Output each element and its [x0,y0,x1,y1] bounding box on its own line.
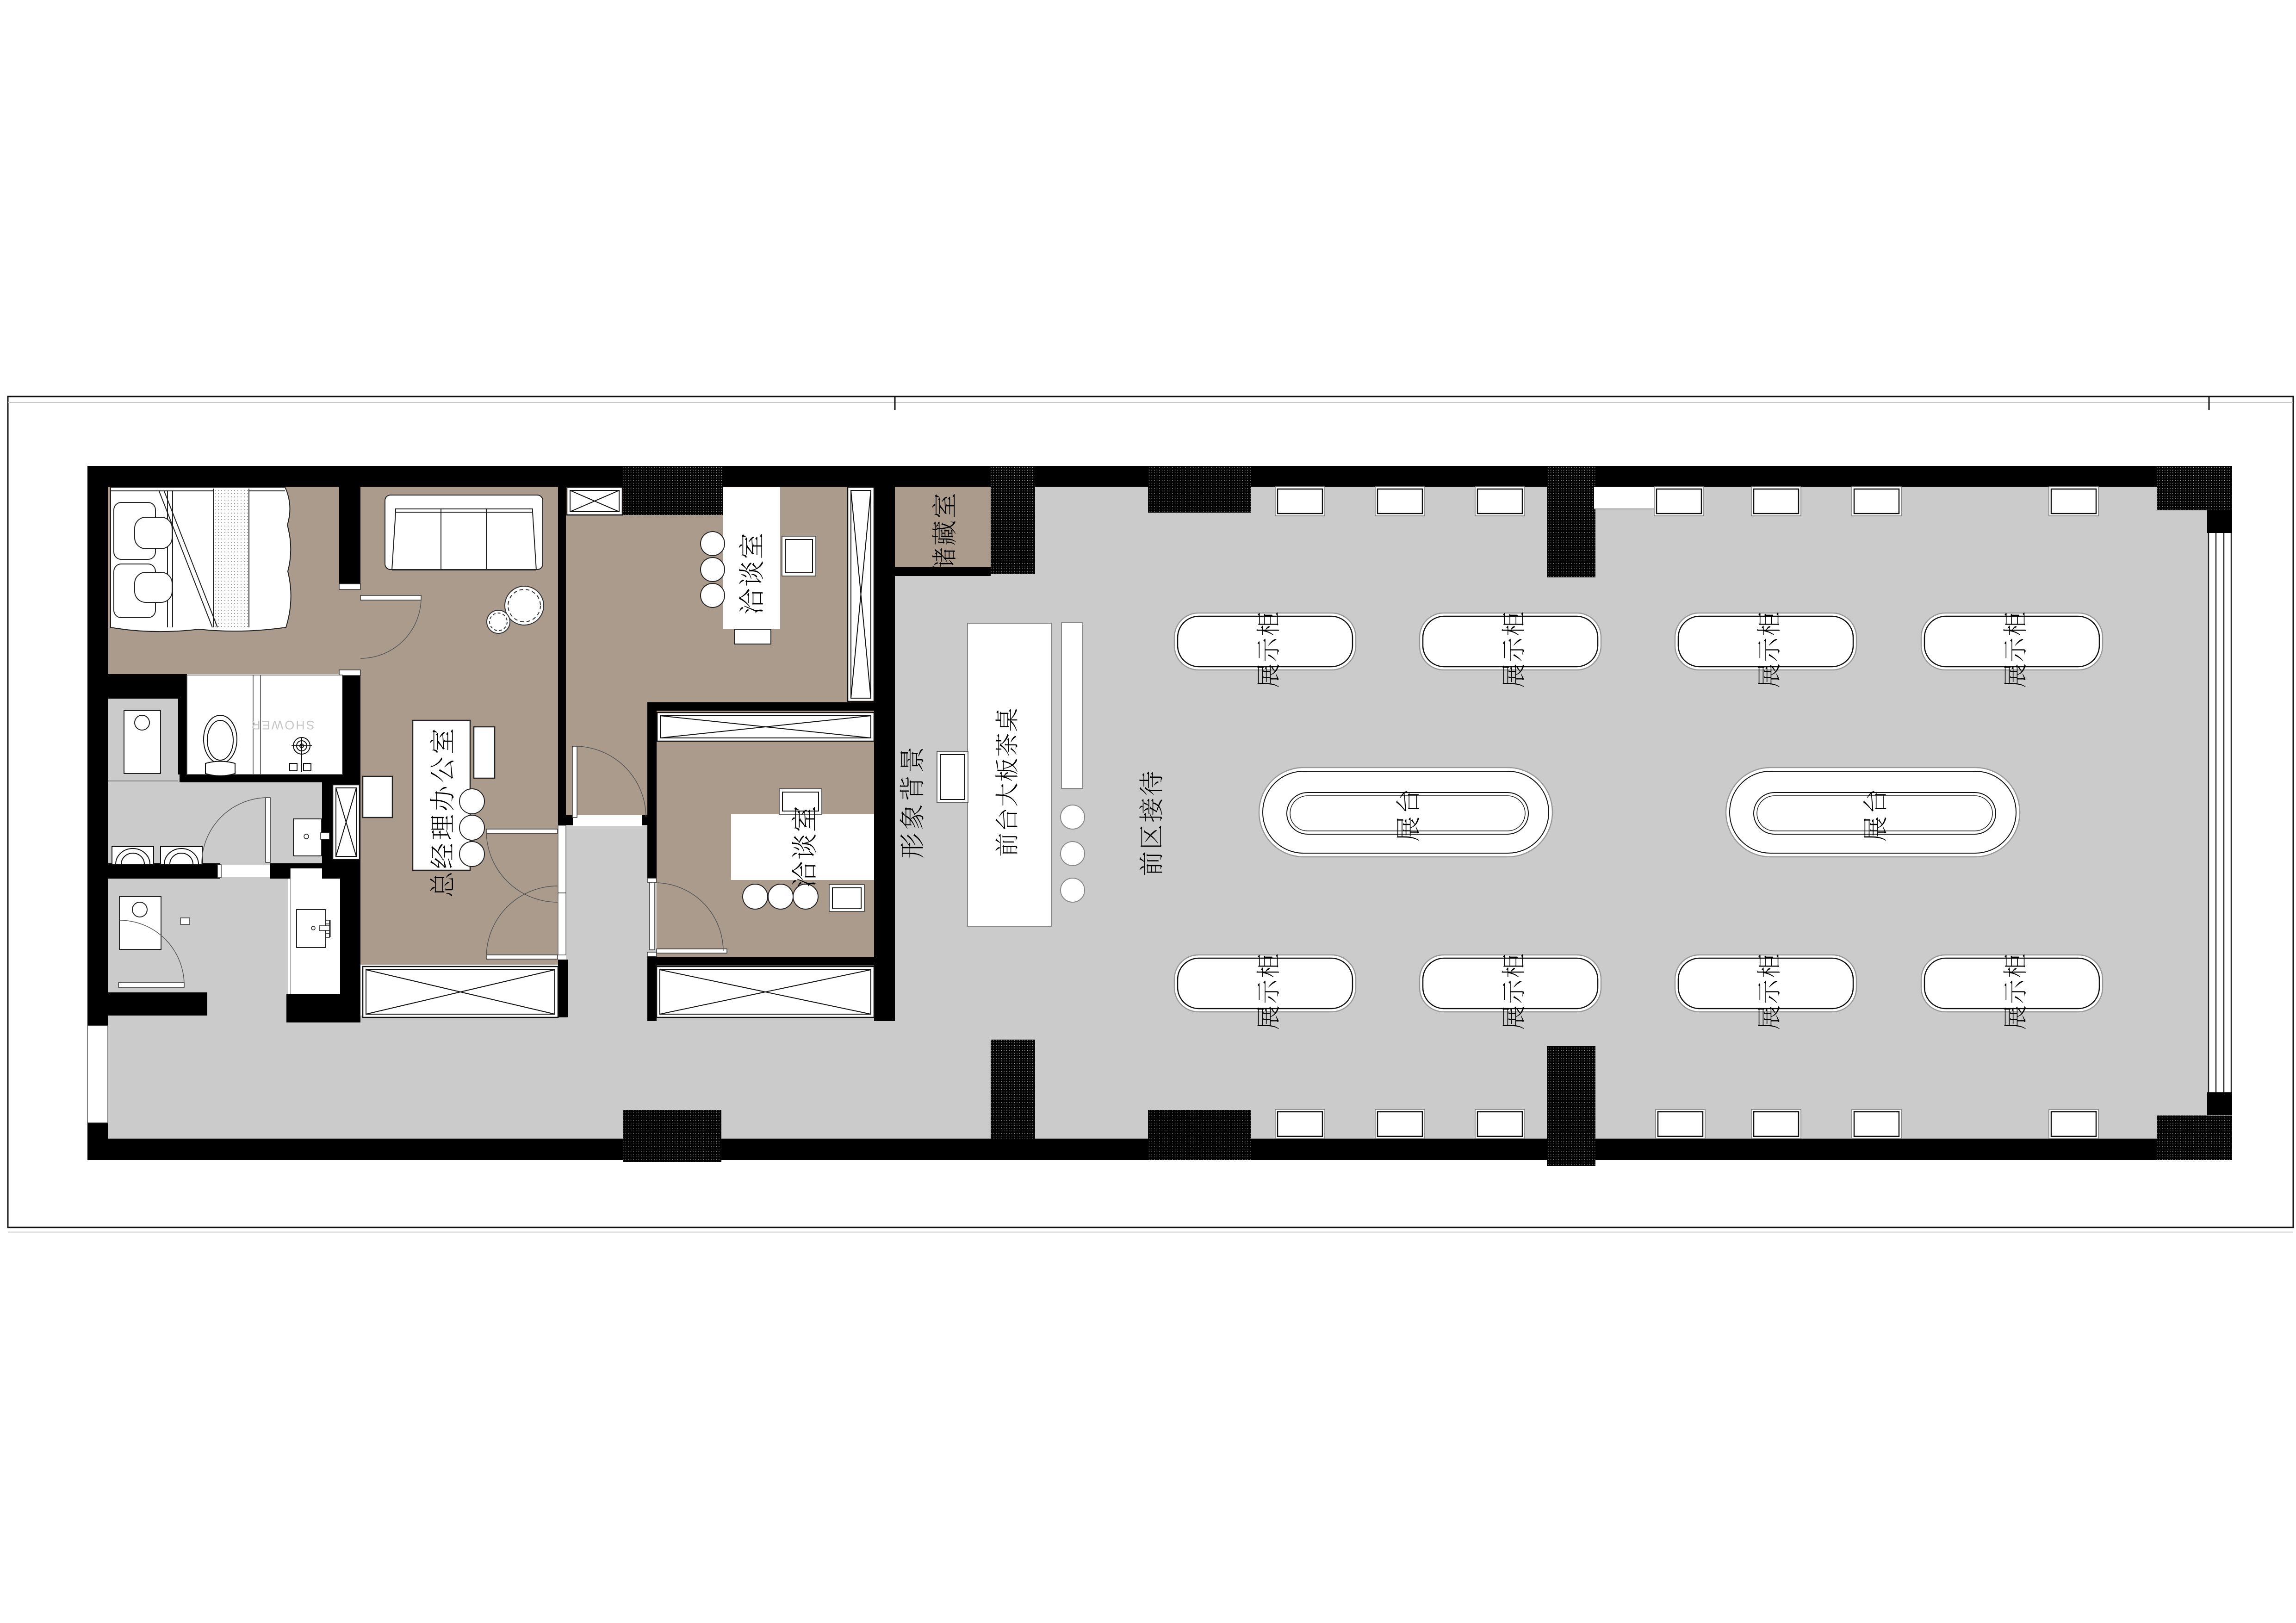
svg-text:SHOWER: SHOWER [250,718,315,732]
